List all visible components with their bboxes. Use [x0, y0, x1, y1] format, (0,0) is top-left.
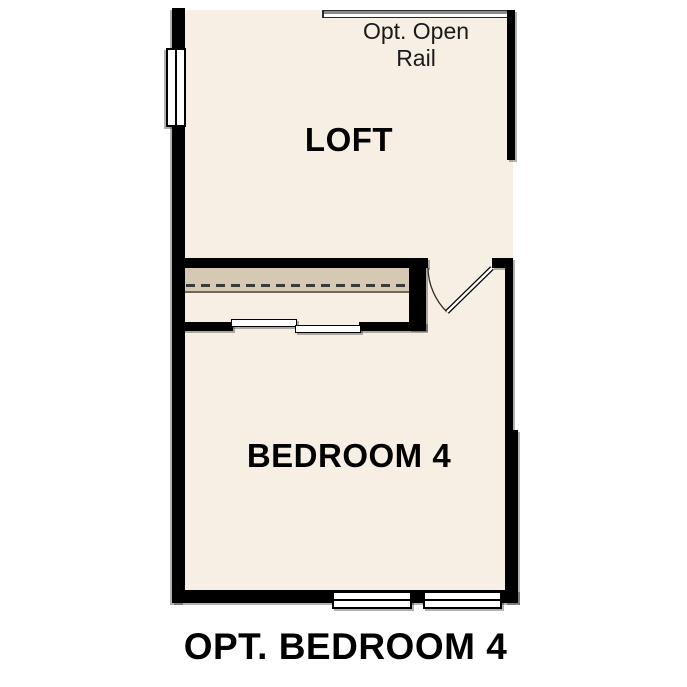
- loft-label: LOFT: [185, 122, 513, 158]
- wall-closet-bottom-left: [172, 322, 233, 331]
- door-leaf: [447, 268, 492, 312]
- bedroom4-label: BEDROOM 4: [185, 438, 513, 474]
- window-glass-line: [334, 599, 410, 601]
- window-glass-line: [175, 50, 177, 125]
- window-left: [166, 48, 186, 127]
- window-glass-line: [425, 599, 500, 601]
- closet-shelf: [185, 268, 409, 293]
- wall-closet-bottom-right: [359, 322, 426, 331]
- closet-door-right-panel: [295, 325, 361, 333]
- open-rail-symbol: [322, 10, 508, 18]
- door-arc: [428, 268, 447, 312]
- window-bottom-1: [332, 591, 412, 609]
- wall-closet-top: [178, 258, 428, 268]
- closet-rod-dashed-line: [186, 284, 408, 287]
- closet-door-left-panel: [231, 319, 297, 327]
- floor-plan: Opt. Open Rail LOFT BEDROOM 4 OPT. BEDRO…: [0, 0, 687, 687]
- plan-caption: OPT. BEDROOM 4: [178, 626, 513, 668]
- swing-door: [420, 258, 520, 328]
- open-rail-label: Opt. Open Rail: [341, 18, 491, 72]
- window-bottom-2: [423, 591, 502, 609]
